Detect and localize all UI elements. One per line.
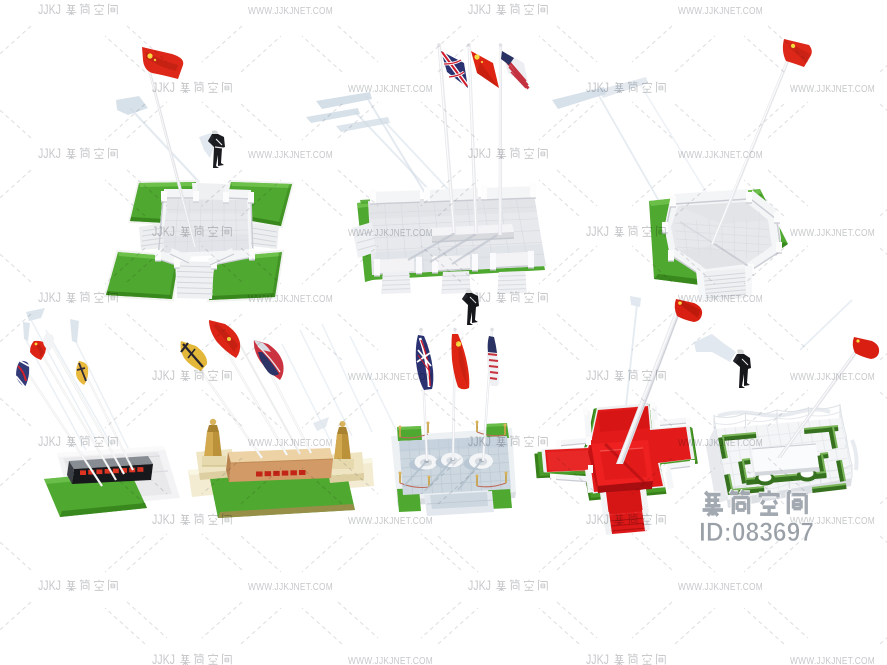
svg-text:JJKJ: JJKJ <box>586 512 609 527</box>
svg-text:JJKJ: JJKJ <box>152 512 175 527</box>
svg-text:WWW.JJKJNET.COM: WWW.JJKJNET.COM <box>790 84 875 95</box>
svg-text:WWW.JJKJNET.COM: WWW.JJKJNET.COM <box>678 438 763 449</box>
svg-text:WWW.JJKJNET.COM: WWW.JJKJNET.COM <box>678 294 763 305</box>
svg-text:WWW.JJKJNET.COM: WWW.JJKJNET.COM <box>248 6 333 17</box>
svg-text:WWW.JJKJNET.COM: WWW.JJKJNET.COM <box>248 438 333 449</box>
svg-text:WWW.JJKJNET.COM: WWW.JJKJNET.COM <box>678 6 763 17</box>
svg-text:WWW.JJKJNET.COM: WWW.JJKJNET.COM <box>790 656 875 665</box>
svg-text:JJKJ: JJKJ <box>38 434 61 449</box>
svg-text:JJKJ: JJKJ <box>468 434 491 449</box>
svg-text:JJKJ: JJKJ <box>152 368 175 383</box>
svg-text:JJKJ: JJKJ <box>38 2 61 17</box>
svg-text:WWW.JJKJNET.COM: WWW.JJKJNET.COM <box>248 150 333 161</box>
svg-text:JJKJ: JJKJ <box>468 2 491 17</box>
svg-text:JJKJ: JJKJ <box>152 224 175 239</box>
svg-text:JJKJ: JJKJ <box>38 290 61 305</box>
svg-text:WWW.JJKJNET.COM: WWW.JJKJNET.COM <box>348 656 433 665</box>
svg-text:WWW.JJKJNET.COM: WWW.JJKJNET.COM <box>790 372 875 383</box>
svg-text:WWW.JJKJNET.COM: WWW.JJKJNET.COM <box>348 372 433 383</box>
svg-text:WWW.JJKJNET.COM: WWW.JJKJNET.COM <box>248 582 333 593</box>
svg-text:JJKJ: JJKJ <box>38 578 61 593</box>
svg-text:JJKJ: JJKJ <box>468 146 491 161</box>
svg-text:JJKJ: JJKJ <box>152 652 175 665</box>
svg-text:WWW.JJKJNET.COM: WWW.JJKJNET.COM <box>248 294 333 305</box>
svg-text:JJKJ: JJKJ <box>586 652 609 665</box>
svg-text:JJKJ: JJKJ <box>586 224 609 239</box>
svg-text:WWW.JJKJNET.COM: WWW.JJKJNET.COM <box>348 516 433 527</box>
svg-text:JJKJ: JJKJ <box>468 578 491 593</box>
svg-text:JJKJ: JJKJ <box>586 80 609 95</box>
svg-text:ID:083697: ID:083697 <box>699 517 814 547</box>
svg-text:JJKJ: JJKJ <box>38 146 61 161</box>
svg-text:WWW.JJKJNET.COM: WWW.JJKJNET.COM <box>678 582 763 593</box>
svg-text:WWW.JJKJNET.COM: WWW.JJKJNET.COM <box>790 228 875 239</box>
svg-text:JJKJ: JJKJ <box>152 80 175 95</box>
svg-text:WWW.JJKJNET.COM: WWW.JJKJNET.COM <box>348 228 433 239</box>
svg-text:JJKJ: JJKJ <box>586 368 609 383</box>
svg-text:WWW.JJKJNET.COM: WWW.JJKJNET.COM <box>348 84 433 95</box>
svg-text:WWW.JJKJNET.COM: WWW.JJKJNET.COM <box>678 150 763 161</box>
svg-text:JJKJ: JJKJ <box>468 290 491 305</box>
